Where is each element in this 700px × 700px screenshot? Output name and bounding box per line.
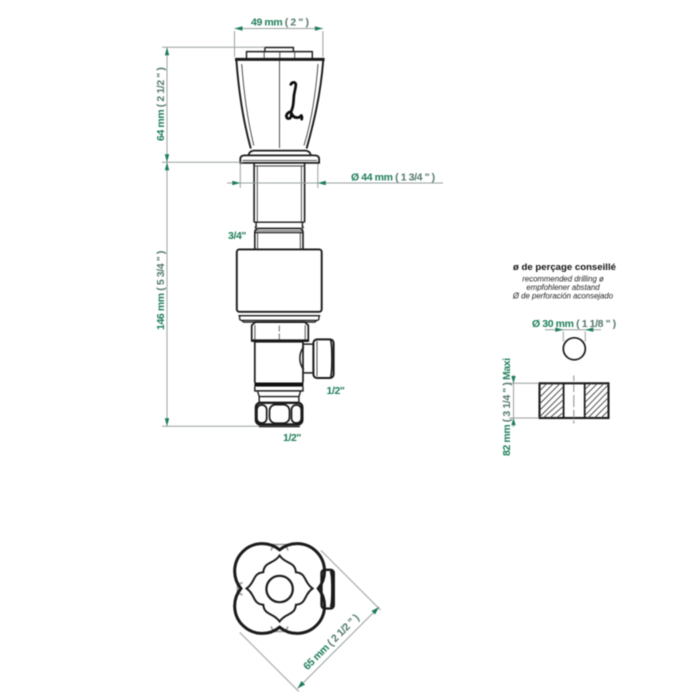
svg-text:Ø 30 mm ( 1 1/8 " ): Ø 30 mm ( 1 1/8 " ) <box>532 318 616 330</box>
svg-text:1/2": 1/2" <box>327 385 345 397</box>
svg-text:1/2": 1/2" <box>283 432 301 444</box>
svg-text:Ø de perforación aconsejado: Ø de perforación aconsejado <box>512 292 614 301</box>
svg-text:82 mm ( 3 1/4 " ) Maxi: 82 mm ( 3 1/4 " ) Maxi <box>501 358 513 456</box>
svg-text:49 mm ( 2 " ): 49 mm ( 2 " ) <box>251 17 309 29</box>
svg-text:Ø 44 mm ( 1 3/4 " ): Ø 44 mm ( 1 3/4 " ) <box>351 172 435 184</box>
svg-text:3/4": 3/4" <box>228 230 246 242</box>
svg-text:146 mm ( 5 3/4 " ): 146 mm ( 5 3/4 " ) <box>155 251 167 330</box>
svg-text:64 mm ( 2 1/2 " ): 64 mm ( 2 1/2 " ) <box>155 68 167 141</box>
svg-text:ø de perçage conseillé: ø de perçage conseillé <box>513 262 616 273</box>
